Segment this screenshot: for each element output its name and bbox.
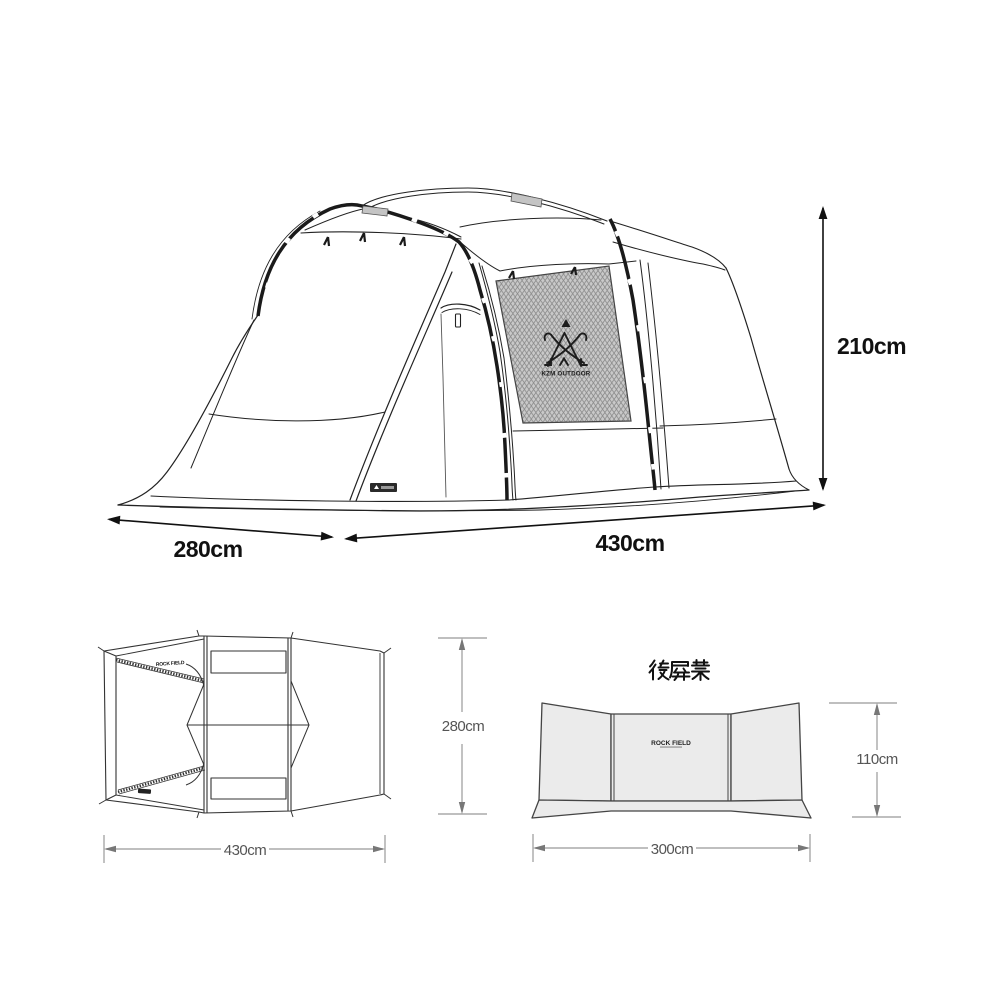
svg-text:ROCK FIELD: ROCK FIELD bbox=[651, 740, 691, 747]
svg-text:110cm: 110cm bbox=[856, 751, 897, 768]
svg-text:210cm: 210cm bbox=[837, 333, 906, 359]
svg-text:280cm: 280cm bbox=[173, 536, 242, 562]
svg-text:300cm: 300cm bbox=[651, 841, 694, 858]
svg-text:KZM OUTDOOR: KZM OUTDOOR bbox=[542, 371, 591, 378]
svg-text:430cm: 430cm bbox=[224, 842, 267, 859]
svg-text:430cm: 430cm bbox=[595, 530, 664, 556]
svg-text:280cm: 280cm bbox=[442, 718, 485, 735]
